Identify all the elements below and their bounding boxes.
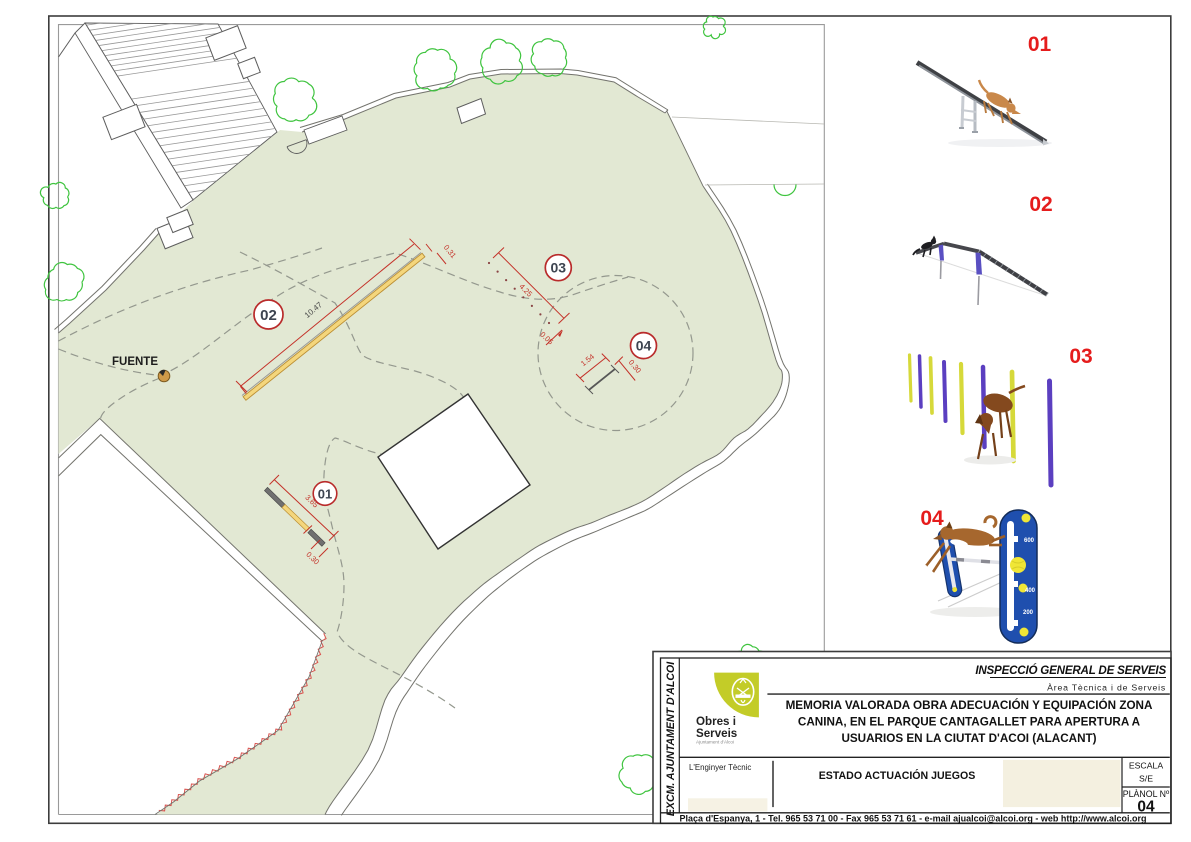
svg-text:03: 03 xyxy=(551,260,567,276)
svg-text:Àrea Tècnica i de Serveis: Àrea Tècnica i de Serveis xyxy=(1047,683,1166,693)
svg-text:03: 03 xyxy=(1069,345,1092,368)
svg-text:200: 200 xyxy=(1023,610,1034,616)
svg-text:USUARIOS EN LA CIUTAT D'ACOI (: USUARIOS EN LA CIUTAT D'ACOI (ALACANT) xyxy=(841,732,1096,745)
svg-text:04: 04 xyxy=(920,507,944,530)
svg-text:04: 04 xyxy=(636,338,652,354)
svg-text:02: 02 xyxy=(260,307,277,324)
svg-text:S/E: S/E xyxy=(1139,774,1153,784)
svg-text:01: 01 xyxy=(318,486,332,501)
svg-text:ESCALA: ESCALA xyxy=(1129,761,1163,771)
svg-text:01: 01 xyxy=(1028,33,1052,56)
svg-text:PLÀNOL Nº: PLÀNOL Nº xyxy=(1123,789,1170,799)
svg-text:400: 400 xyxy=(1025,588,1036,594)
svg-text:EXCM. AJUNTAMENT D'ALCOI: EXCM. AJUNTAMENT D'ALCOI xyxy=(665,661,677,816)
svg-text:MEMORIA VALORADA OBRA ADECUACI: MEMORIA VALORADA OBRA ADECUACIÓN Y EQUIP… xyxy=(786,699,1153,712)
svg-text:FUENTE: FUENTE xyxy=(112,356,158,368)
svg-text:02: 02 xyxy=(1029,193,1052,216)
svg-text:CANINA, EN EL PARQUE CANTAGALL: CANINA, EN EL PARQUE CANTAGALLET PARA AP… xyxy=(798,716,1141,729)
svg-text:L'Enginyer Tècnic: L'Enginyer Tècnic xyxy=(689,763,751,772)
svg-text:Serveis: Serveis xyxy=(696,727,737,740)
svg-text:Ajuntament d'Alcoi: Ajuntament d'Alcoi xyxy=(696,740,734,745)
svg-text:INSPECCIÓ GENERAL DE SERVEIS: INSPECCIÓ GENERAL DE SERVEIS xyxy=(975,664,1166,677)
svg-text:600: 600 xyxy=(1024,538,1035,544)
svg-text:Plaça d'Espanya, 1 - Tel. 965: Plaça d'Espanya, 1 - Tel. 965 53 71 00 -… xyxy=(679,813,1146,823)
svg-text:ESTADO ACTUACIÓN JUEGOS: ESTADO ACTUACIÓN JUEGOS xyxy=(819,769,976,782)
